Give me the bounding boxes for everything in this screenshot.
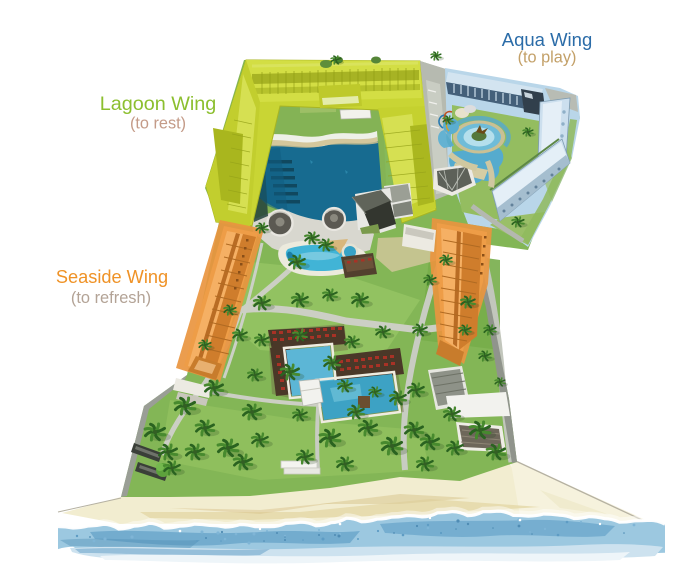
- svg-text:(to refresh): (to refresh): [71, 289, 151, 307]
- svg-text:Lagoon Wing: Lagoon Wing: [100, 93, 217, 115]
- svg-text:Aqua Wing: Aqua Wing: [502, 29, 593, 50]
- svg-text:Seaside Wing: Seaside Wing: [56, 267, 168, 287]
- svg-text:(to rest): (to rest): [130, 115, 186, 133]
- svg-text:(to play): (to play): [518, 49, 577, 67]
